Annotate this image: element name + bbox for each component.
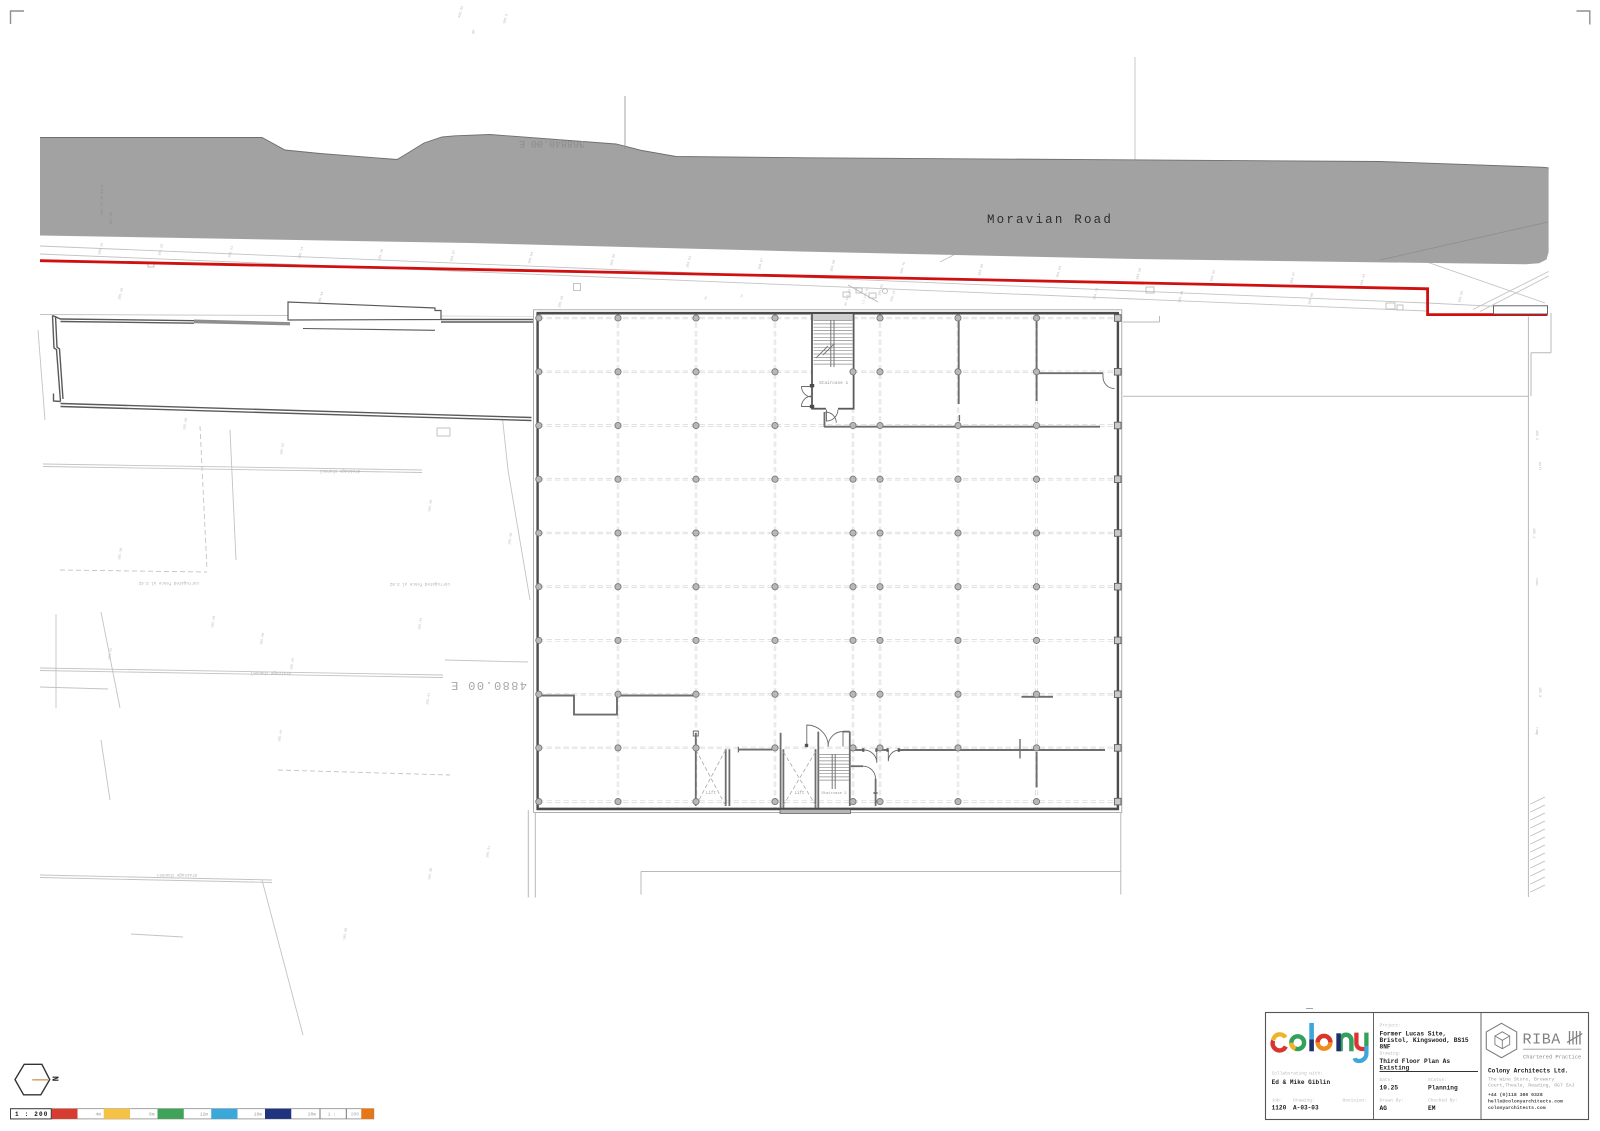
svg-text:+44 (0)118 380 0328: +44 (0)118 380 0328	[1488, 1092, 1543, 1098]
svg-text:Revision:: Revision:	[1343, 1098, 1367, 1104]
svg-text:105.38: 105.38	[343, 928, 349, 941]
svg-text:Existing: Existing	[1380, 1065, 1410, 1072]
svg-text:corrugated fence al 3.62: corrugated fence al 3.62	[389, 581, 450, 586]
svg-text:The Wine Store, Brewery: The Wine Store, Brewery	[1488, 1077, 1554, 1083]
svg-text:105.34: 105.34	[318, 292, 325, 305]
svg-text:Court,Theale, Reading, RG7 5AJ: Court,Theale, Reading, RG7 5AJ	[1488, 1083, 1574, 1089]
svg-text:458.82: 458.82	[458, 6, 465, 19]
svg-text:RIBA: RIBA	[1523, 1032, 1561, 1049]
svg-text:hello@colonyarchitects.com: hello@colonyarchitects.com	[1488, 1099, 1563, 1105]
svg-text:4880.00 E: 4880.00 E	[450, 678, 527, 692]
svg-text:sv: sv	[703, 295, 708, 300]
svg-text:104.87: 104.87	[758, 258, 765, 271]
svg-text:Moravian Road: Moravian Road	[987, 213, 1113, 227]
svg-text:104.64: 104.64	[1056, 266, 1063, 279]
svg-text:wall: wall	[1537, 462, 1542, 470]
svg-text:200: 200	[351, 1112, 360, 1118]
svg-text:104.76: 104.76	[900, 262, 907, 275]
svg-text:Drawing:: Drawing:	[1380, 1051, 1402, 1057]
svg-text:Staircase 1: Staircase 1	[819, 381, 848, 386]
svg-text:105.38: 105.38	[118, 288, 125, 301]
svg-text:105.44: 105.44	[278, 730, 284, 743]
svg-text:Chartered Practice: Chartered Practice	[1523, 1054, 1581, 1060]
svg-text:Colony Architects Ltd.: Colony Architects Ltd.	[1488, 1068, 1568, 1075]
svg-text:EM: EM	[1428, 1105, 1436, 1112]
svg-text:105.2: 105.2	[1534, 430, 1538, 440]
svg-text:Lift: Lift	[706, 791, 717, 796]
svg-text:Checked By:: Checked By:	[1428, 1098, 1458, 1104]
svg-text:105.60: 105.60	[110, 212, 114, 225]
svg-text:105.9: 105.9	[503, 14, 510, 25]
svg-text:104.43: 104.43	[1360, 274, 1367, 287]
svg-text:105.10: 105.10	[378, 249, 385, 262]
svg-text:105.46: 105.46	[508, 533, 514, 546]
svg-text:10.25: 10.25	[1380, 1085, 1399, 1092]
svg-text:105.14: 105.14	[298, 247, 305, 260]
svg-text:Planning: Planning	[1428, 1085, 1458, 1092]
svg-text:Ed & Mike Giblin: Ed & Mike Giblin	[1272, 1079, 1331, 1086]
svg-text:1 :: 1 :	[328, 1112, 336, 1118]
svg-text:ic: ic	[739, 293, 744, 298]
svg-text:Job:: Job:	[1272, 1098, 1283, 1104]
svg-text:colonyarchitects.com: colonyarchitects.com	[1488, 1105, 1546, 1111]
svg-text:GP: GP	[472, 30, 477, 35]
svg-text:N: N	[50, 1076, 60, 1081]
svg-text:105.1: 105.1	[1531, 528, 1535, 538]
svg-text:105.41: 105.41	[426, 693, 432, 706]
svg-text:Lift: Lift	[794, 791, 805, 796]
svg-text:105.49: 105.49	[211, 616, 217, 629]
svg-text:1 : 200: 1 : 200	[15, 1111, 49, 1118]
svg-text:104.98: 104.98	[610, 254, 617, 267]
svg-text:105.04: 105.04	[528, 252, 535, 265]
svg-text:Drawing:: Drawing:	[1293, 1098, 1315, 1104]
svg-text:1120: 1120	[1272, 1105, 1287, 1112]
svg-text:104.52: 104.52	[1210, 270, 1217, 283]
svg-text:Collaborating with:: Collaborating with:	[1272, 1071, 1323, 1077]
svg-text:105.26: 105.26	[558, 296, 565, 309]
svg-text:105.0: 105.0	[1537, 687, 1541, 697]
svg-text:Project:: Project:	[1380, 1023, 1402, 1029]
svg-text:4m: 4m	[95, 1112, 101, 1118]
svg-text:105.02: 105.02	[878, 284, 885, 297]
svg-text:8NF: 8NF	[1380, 1044, 1391, 1051]
svg-text:368840.00 E: 368840.00 E	[519, 137, 585, 148]
svg-text:105.36: 105.36	[428, 868, 434, 881]
svg-text:conc: conc	[1534, 578, 1538, 586]
svg-text:105.43: 105.43	[418, 618, 424, 631]
svg-text:104.80: 104.80	[830, 260, 837, 273]
svg-text:105.18: 105.18	[98, 243, 105, 256]
svg-text:105.24: 105.24	[889, 290, 896, 302]
svg-text:105.39: 105.39	[118, 548, 124, 561]
svg-text:105.21: 105.21	[228, 246, 235, 259]
svg-text:ramp: ramp	[1534, 727, 1539, 735]
svg-text:Staircase 2: Staircase 2	[821, 791, 847, 796]
svg-text:A-03-03: A-03-03	[1293, 1105, 1319, 1112]
svg-text:104.58: 104.58	[1136, 268, 1143, 281]
svg-text:105.42: 105.42	[108, 648, 114, 661]
svg-text:105.31: 105.31	[486, 846, 492, 859]
svg-text:104.47: 104.47	[1290, 272, 1297, 285]
svg-text:105.52: 105.52	[280, 443, 286, 456]
svg-text:104.97: 104.97	[450, 250, 457, 263]
svg-text:Bristol, Kingswood, BS15: Bristol, Kingswood, BS15	[1380, 1037, 1469, 1044]
svg-text:drainage channel: drainage channel	[156, 872, 197, 877]
svg-text:16m: 16m	[254, 1112, 263, 1118]
svg-text:8m: 8m	[149, 1112, 155, 1118]
svg-text:drainage channel: drainage channel	[250, 670, 291, 675]
svg-text:corrugated fence al 3.42: corrugated fence al 3.42	[138, 580, 199, 585]
svg-text:105.74 tk kerb: 105.74 tk kerb	[100, 185, 105, 215]
svg-text:drainage channel: drainage channel	[319, 468, 360, 473]
svg-text:104.55: 104.55	[1458, 291, 1465, 304]
svg-text:104.58: 104.58	[1308, 293, 1315, 306]
svg-text:105.48: 105.48	[428, 500, 434, 513]
svg-text:AG: AG	[1380, 1105, 1388, 1112]
svg-text:Drawn By:: Drawn By:	[1380, 1098, 1404, 1104]
svg-text:104.69: 104.69	[978, 264, 985, 277]
svg-text:12m: 12m	[200, 1112, 209, 1118]
svg-text:Date:: Date:	[1380, 1077, 1394, 1083]
svg-text:105.45: 105.45	[290, 658, 296, 671]
svg-text:Status:: Status:	[1428, 1077, 1447, 1083]
svg-text:104.91: 104.91	[686, 256, 693, 269]
svg-text:105.25: 105.25	[158, 244, 165, 257]
svg-text:105.40: 105.40	[260, 633, 266, 646]
svg-text:105.56: 105.56	[183, 418, 189, 431]
svg-text:20m: 20m	[308, 1112, 317, 1118]
